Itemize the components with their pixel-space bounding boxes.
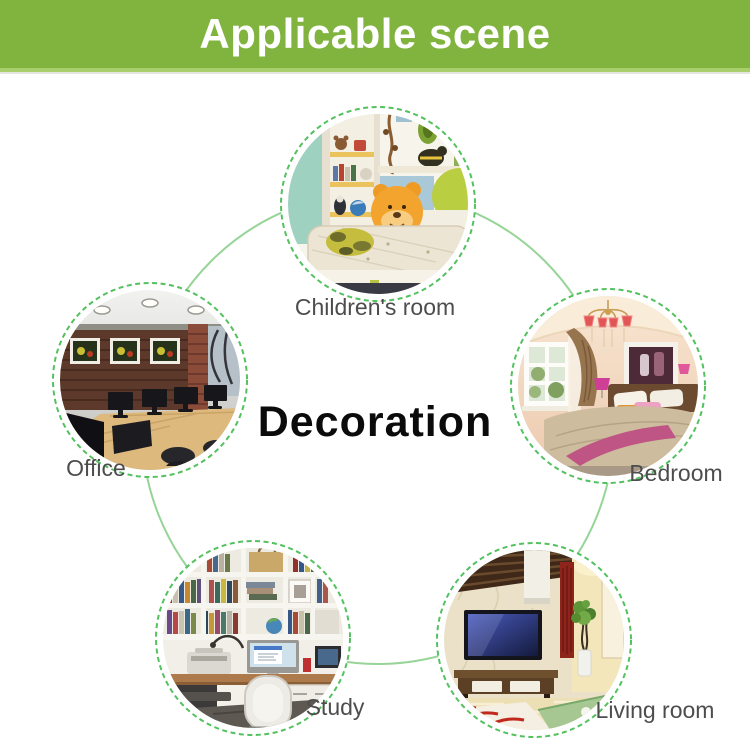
scene-label-office: Office — [66, 455, 126, 482]
page-title: Applicable scene — [199, 10, 550, 58]
office-chair — [245, 676, 291, 730]
wall-lamp — [678, 364, 690, 374]
bookshelf — [163, 546, 343, 646]
scene-office — [50, 280, 250, 480]
scene-label-childrens-room: Children's room — [295, 294, 455, 321]
wall-picture — [624, 342, 678, 390]
office-photo — [50, 280, 250, 480]
center-label: Decoration — [258, 398, 493, 447]
header-banner: Applicable scene — [0, 0, 750, 72]
scene-label-bedroom: Bedroom — [629, 460, 722, 487]
scene-childrens-room — [278, 104, 478, 304]
window — [522, 342, 572, 411]
scene-label-study: Study — [306, 694, 365, 721]
decoration-diagram: Decoration — [0, 0, 750, 750]
framed-pictures — [70, 338, 180, 364]
scene-bedroom — [508, 286, 708, 486]
bedroom-photo — [508, 286, 708, 486]
page: Applicable scene Decoration — [0, 0, 750, 750]
scene-label-living-room: Living room — [596, 697, 715, 724]
tv — [464, 610, 542, 660]
childrens-room-photo — [278, 104, 478, 304]
